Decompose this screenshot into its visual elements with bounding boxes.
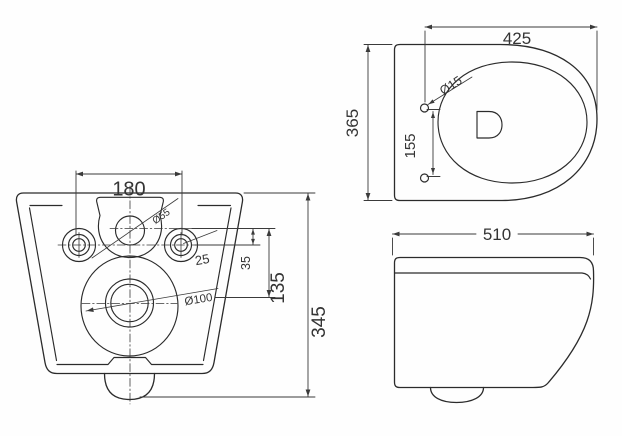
hinge-hole-lower bbox=[421, 174, 429, 182]
outlet-diameter-label: Ø100 bbox=[184, 292, 214, 308]
outlet-outer bbox=[106, 279, 154, 327]
dim-fixing-hole-spacing: 180 bbox=[76, 171, 182, 235]
rear-view: 180 345 135 35 25 Ø100 Ø55 bbox=[16, 171, 330, 404]
dim-overall-width: 365 bbox=[343, 45, 392, 201]
rear-body-outline bbox=[16, 193, 242, 374]
dim-180-label: 180 bbox=[112, 179, 145, 201]
technical-drawing-canvas: 180 345 135 35 25 Ø100 Ø55 bbox=[0, 0, 622, 436]
dim-overall-depth: 510 bbox=[393, 225, 594, 255]
dim-510-label: 510 bbox=[483, 225, 511, 244]
outlet-inner bbox=[111, 284, 148, 321]
hinge-hole-upper bbox=[421, 104, 429, 112]
dim-depth-to-hinge: 425 bbox=[425, 25, 597, 110]
toilet-dimension-drawing: 180 345 135 35 25 Ø100 Ø55 bbox=[0, 0, 622, 436]
dim-135-label: 135 bbox=[268, 272, 289, 304]
dim-155-label: 155 bbox=[402, 133, 419, 158]
dim-35-label: 35 bbox=[239, 256, 253, 270]
dim-425-label: 425 bbox=[503, 29, 531, 48]
dim-25-label: 25 bbox=[194, 251, 211, 268]
side-view: 510 bbox=[393, 225, 594, 403]
dim-hinge-hole-spacing: 155 bbox=[402, 110, 440, 177]
side-body-outline bbox=[395, 258, 594, 388]
flush-d-shape bbox=[477, 112, 502, 139]
side-rim-line bbox=[395, 273, 591, 279]
top-view: 425 365 155 Ø15 bbox=[343, 25, 597, 201]
outlet-bump bbox=[105, 374, 155, 400]
side-outlet-bump bbox=[431, 388, 484, 403]
bowl-cavity bbox=[81, 256, 178, 356]
dim-345-label: 345 bbox=[309, 306, 330, 338]
dim-overall-height: 345 bbox=[140, 193, 330, 397]
dim-365-label: 365 bbox=[343, 109, 362, 137]
hinge-hole-diameter-callout: Ø15 bbox=[427, 73, 472, 106]
